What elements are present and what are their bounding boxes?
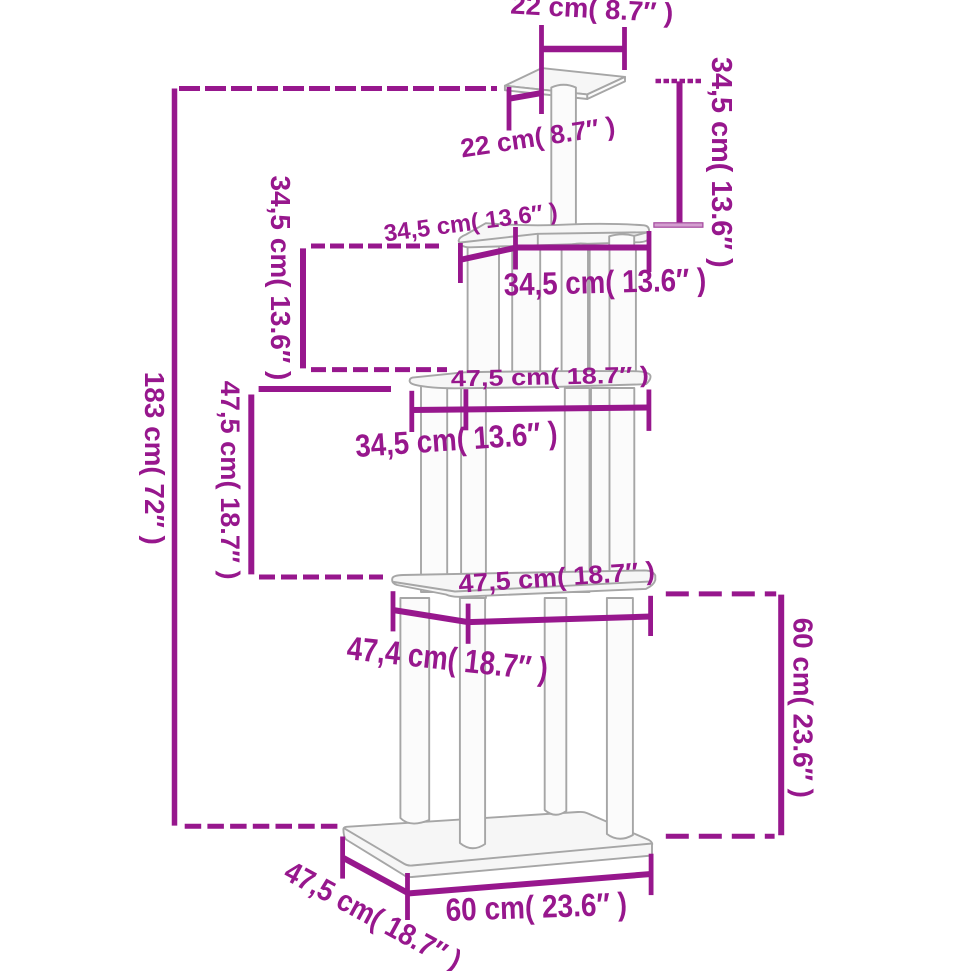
svg-text:60 cm( 23.6″ ): 60 cm( 23.6″ ) — [445, 887, 628, 929]
svg-text:60 cm( 23.6″ ): 60 cm( 23.6″ ) — [787, 618, 818, 798]
svg-text:34,5 cm( 13.6″ ): 34,5 cm( 13.6″ ) — [705, 57, 737, 268]
svg-text:34,5 cm( 13.6″ ): 34,5 cm( 13.6″ ) — [265, 176, 296, 381]
svg-text:47,5 cm( 18.7″ ): 47,5 cm( 18.7″ ) — [451, 362, 650, 392]
svg-text:34,5 cm( 13.6″ ): 34,5 cm( 13.6″ ) — [503, 262, 706, 303]
svg-text:183 cm( 72″ ): 183 cm( 72″ ) — [139, 372, 170, 545]
svg-text:47,5 cm( 18.7″ ): 47,5 cm( 18.7″ ) — [215, 381, 246, 580]
